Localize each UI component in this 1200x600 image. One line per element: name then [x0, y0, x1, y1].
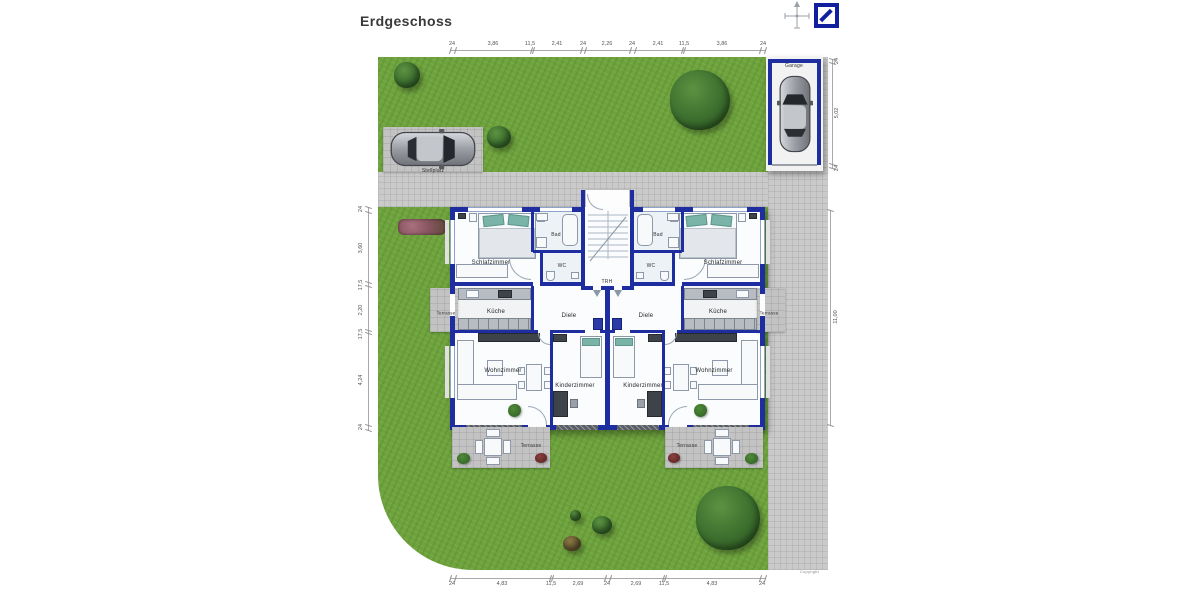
room-label-terrasse-garden-left: Terrasse [521, 443, 542, 449]
wall-segment [531, 212, 534, 252]
dim-label: 11,5 [546, 581, 556, 587]
deutsche-bank-logo-icon [814, 3, 839, 28]
window-bedroom-right [693, 207, 747, 212]
bush-bottom-3 [570, 510, 581, 521]
washer-left [536, 237, 547, 248]
dim-label: 24 [834, 165, 840, 171]
terrace-chair [503, 440, 511, 454]
room-label-wc-right: WC [647, 263, 656, 269]
terrace-plant-red [668, 453, 680, 463]
toilet-right [660, 271, 669, 281]
terrace-chair [475, 440, 483, 454]
wall-core-bottom [622, 286, 634, 290]
wall-party [605, 290, 610, 425]
dim-label: 3,86 [488, 41, 499, 47]
kids-pillow-right [615, 338, 633, 346]
copyright-note: Copyright [800, 569, 819, 574]
dim-line-garage [832, 59, 833, 168]
dim-label: 24 [629, 41, 635, 47]
north-arrow-icon [782, 1, 812, 31]
kitchen-counter-bottom-left [458, 318, 531, 330]
bush-bottom-2 [563, 536, 581, 551]
flowerbed [398, 219, 446, 235]
bathtub-right [637, 214, 653, 246]
terrace-plant-green [457, 453, 470, 464]
dim-label: 24 [760, 41, 766, 47]
terrace-table-left [484, 438, 502, 456]
room-label-kinderzimmer-left: Kinderzimmer [555, 383, 594, 389]
room-label-wohnzimmer-left: Wohnzimmer [484, 368, 521, 374]
dim-label: 24 [604, 581, 610, 587]
stove-left [498, 290, 512, 298]
stellplatz-label: Stellplatz [422, 168, 444, 174]
kitchen-counter-bottom-right [684, 318, 757, 330]
terrace-chair [732, 440, 740, 454]
tree-large-bottom [696, 486, 760, 550]
room-label-terrasse-side-right: Terrasse [760, 311, 779, 316]
toilet-left [546, 271, 555, 281]
dim-label: 3,60 [358, 243, 364, 254]
terrace-chair [704, 440, 712, 454]
pillow [507, 214, 529, 227]
kids-wardrobe-left [553, 334, 567, 342]
room-label-bad-left: Bad [551, 232, 561, 238]
wall-segment [681, 212, 684, 252]
terrace-plant-green [745, 453, 758, 464]
dim-line-bottom [450, 578, 765, 579]
window-shutter-kids-right [617, 425, 659, 430]
nightstand [469, 213, 477, 222]
tv-board-left [478, 333, 540, 342]
bed-blanket-left [479, 228, 535, 258]
room-label-schlafzimmer-left: Schlafzimmer [472, 260, 511, 266]
dim-label: 17,5 [358, 329, 364, 340]
room-label-terrasse-side-left: Terrasse [437, 311, 456, 316]
plant-living-right [694, 404, 707, 417]
window-sill [445, 220, 449, 264]
sofa-left-horizontal [457, 384, 517, 400]
room-label-bad-right: Bad [653, 232, 663, 238]
terrace-chair [715, 429, 729, 437]
dresser-right [749, 213, 757, 219]
door-swing-trh-right [614, 290, 622, 297]
window-side-left-2 [450, 346, 455, 398]
window-sill [766, 346, 770, 398]
dim-label: 24 [358, 424, 364, 430]
dresser-left [458, 213, 466, 219]
wall-segment [610, 330, 615, 333]
dim-label: 24 [358, 206, 364, 212]
window-side-right-1 [760, 220, 765, 264]
window-side-left-1 [450, 220, 455, 264]
room-label-terrasse-garden-right: Terrasse [677, 443, 698, 449]
dim-label: 2,69 [573, 581, 584, 587]
dim-label: 17,5 [358, 280, 364, 291]
wc-sink-right [636, 272, 644, 279]
dim-label: 5,02 [834, 108, 840, 119]
wall-segment [600, 330, 605, 333]
tree-top-left [394, 62, 420, 88]
washer-right [668, 237, 679, 248]
kids-chair-left [570, 399, 578, 408]
wall-segment [455, 330, 538, 333]
dim-tick [365, 429, 372, 432]
wall-segment [540, 253, 543, 282]
kids-pillow-left [582, 338, 600, 346]
kitchen-sink-left [466, 290, 479, 298]
dim-tick [764, 47, 767, 54]
window-sill [766, 220, 770, 264]
terrace-plant-red [535, 453, 547, 463]
chair [690, 381, 697, 389]
dining-table-left [526, 364, 542, 391]
street-path-horizontal [378, 172, 768, 207]
terrace-chair [486, 457, 500, 465]
garage-wall-right [817, 59, 821, 165]
car-stellplatz [387, 129, 479, 169]
wall-segment [672, 253, 675, 282]
wall-segment [455, 282, 533, 286]
dim-label: 2,20 [358, 305, 364, 316]
wall-core-right [630, 190, 634, 290]
sink-right [667, 213, 679, 221]
logo-slash [819, 9, 832, 22]
garage-door [772, 164, 817, 166]
dim-label: 2,69 [631, 581, 642, 587]
dining-table-right [673, 364, 689, 391]
staircase [586, 209, 630, 265]
garage-wall-left [768, 59, 772, 165]
bush-bottom-1 [592, 516, 612, 534]
nightstand [738, 213, 746, 222]
stove-right [703, 290, 717, 298]
hall-cabinet-left [593, 318, 603, 330]
car-garage [777, 69, 813, 159]
dim-label: 4,83 [497, 581, 508, 587]
window-side-right-2 [760, 346, 765, 398]
wc-sink-left [571, 272, 579, 279]
wall-segment [531, 286, 534, 330]
wall-segment [550, 330, 553, 425]
wall-segment [550, 330, 585, 333]
room-label-wc-left: WC [558, 263, 567, 269]
page-title: Erdgeschoss [360, 13, 452, 29]
window-bath-left [540, 207, 572, 212]
kids-desk-left [553, 391, 568, 417]
dim-label: 4,83 [707, 581, 718, 587]
dim-label: 24 [449, 581, 455, 587]
room-label-kinderzimmer-right: Kinderzimmer [623, 383, 662, 389]
dim-line-top [450, 50, 765, 51]
garage-label: Garage [785, 63, 803, 69]
tree-large-top [670, 70, 730, 130]
chair [664, 367, 671, 375]
dim-label: 2,41 [552, 41, 563, 47]
tv-board-right [675, 333, 737, 342]
floor-plan-page: Erdgeschoss Stellplatz [0, 0, 1200, 600]
bush-near-parking [487, 126, 511, 148]
room-label-diele-left: Diele [562, 313, 577, 319]
room-label-diele-right: Diele [639, 313, 654, 319]
wall-segment [677, 330, 760, 333]
wall-core-left [581, 190, 585, 290]
dim-label: 3,86 [717, 41, 728, 47]
door-swing-trh-left [593, 290, 601, 297]
room-label-schlafzimmer-right: Schlafzimmer [704, 260, 743, 266]
room-label-trh: TRH [602, 279, 613, 285]
sofa-right-horizontal [698, 384, 758, 400]
window-bedroom-left [468, 207, 522, 212]
bed-blanket-right [680, 228, 736, 258]
dim-label: 11,5 [679, 41, 689, 47]
window-shutter-kids-left [556, 425, 598, 430]
pillow [685, 214, 707, 227]
wall-segment [681, 286, 684, 330]
dim-line-right [830, 210, 831, 425]
dim-label: 24 [834, 58, 840, 64]
terrace-chair [715, 457, 729, 465]
kids-desk-right [647, 391, 662, 417]
dim-line-left [368, 207, 369, 430]
room-label-wohnzimmer-right: Wohnzimmer [695, 368, 732, 374]
kitchen-sink-right [736, 290, 749, 298]
wardrobe-left [456, 264, 508, 278]
wall-segment [682, 282, 760, 286]
dim-label: 24 [449, 41, 455, 47]
dim-label: 11,5 [659, 581, 669, 587]
terrace-table-right [713, 438, 731, 456]
plant-living-left [508, 404, 521, 417]
dim-label: 24 [759, 581, 765, 587]
chair [664, 381, 671, 389]
dim-label: 2,26 [602, 41, 613, 47]
dim-label: 24 [580, 41, 586, 47]
chair [518, 381, 525, 389]
dim-label: 11,5 [525, 41, 535, 47]
wall-segment [540, 282, 581, 286]
pillow [482, 214, 504, 227]
wardrobe-right [707, 264, 759, 278]
bathtub-left [562, 214, 578, 246]
dim-label: 11,00 [833, 310, 839, 323]
hall-cabinet-right [612, 318, 622, 330]
wall-segment [630, 330, 665, 333]
window-bath-right [643, 207, 675, 212]
sink-left [536, 213, 548, 221]
dim-tick [827, 424, 834, 427]
kids-wardrobe-right [648, 334, 662, 342]
room-label-kueche-left: Küche [487, 309, 505, 315]
terrace-chair [486, 429, 500, 437]
window-sill [445, 346, 449, 398]
dim-label: 2,41 [653, 41, 664, 47]
room-label-kueche-right: Küche [709, 309, 727, 315]
dim-label: 4,24 [358, 375, 364, 386]
wall-segment [634, 282, 675, 286]
wall-core-bottom [581, 286, 593, 290]
pillow [710, 214, 732, 227]
kids-chair-right [637, 399, 645, 408]
